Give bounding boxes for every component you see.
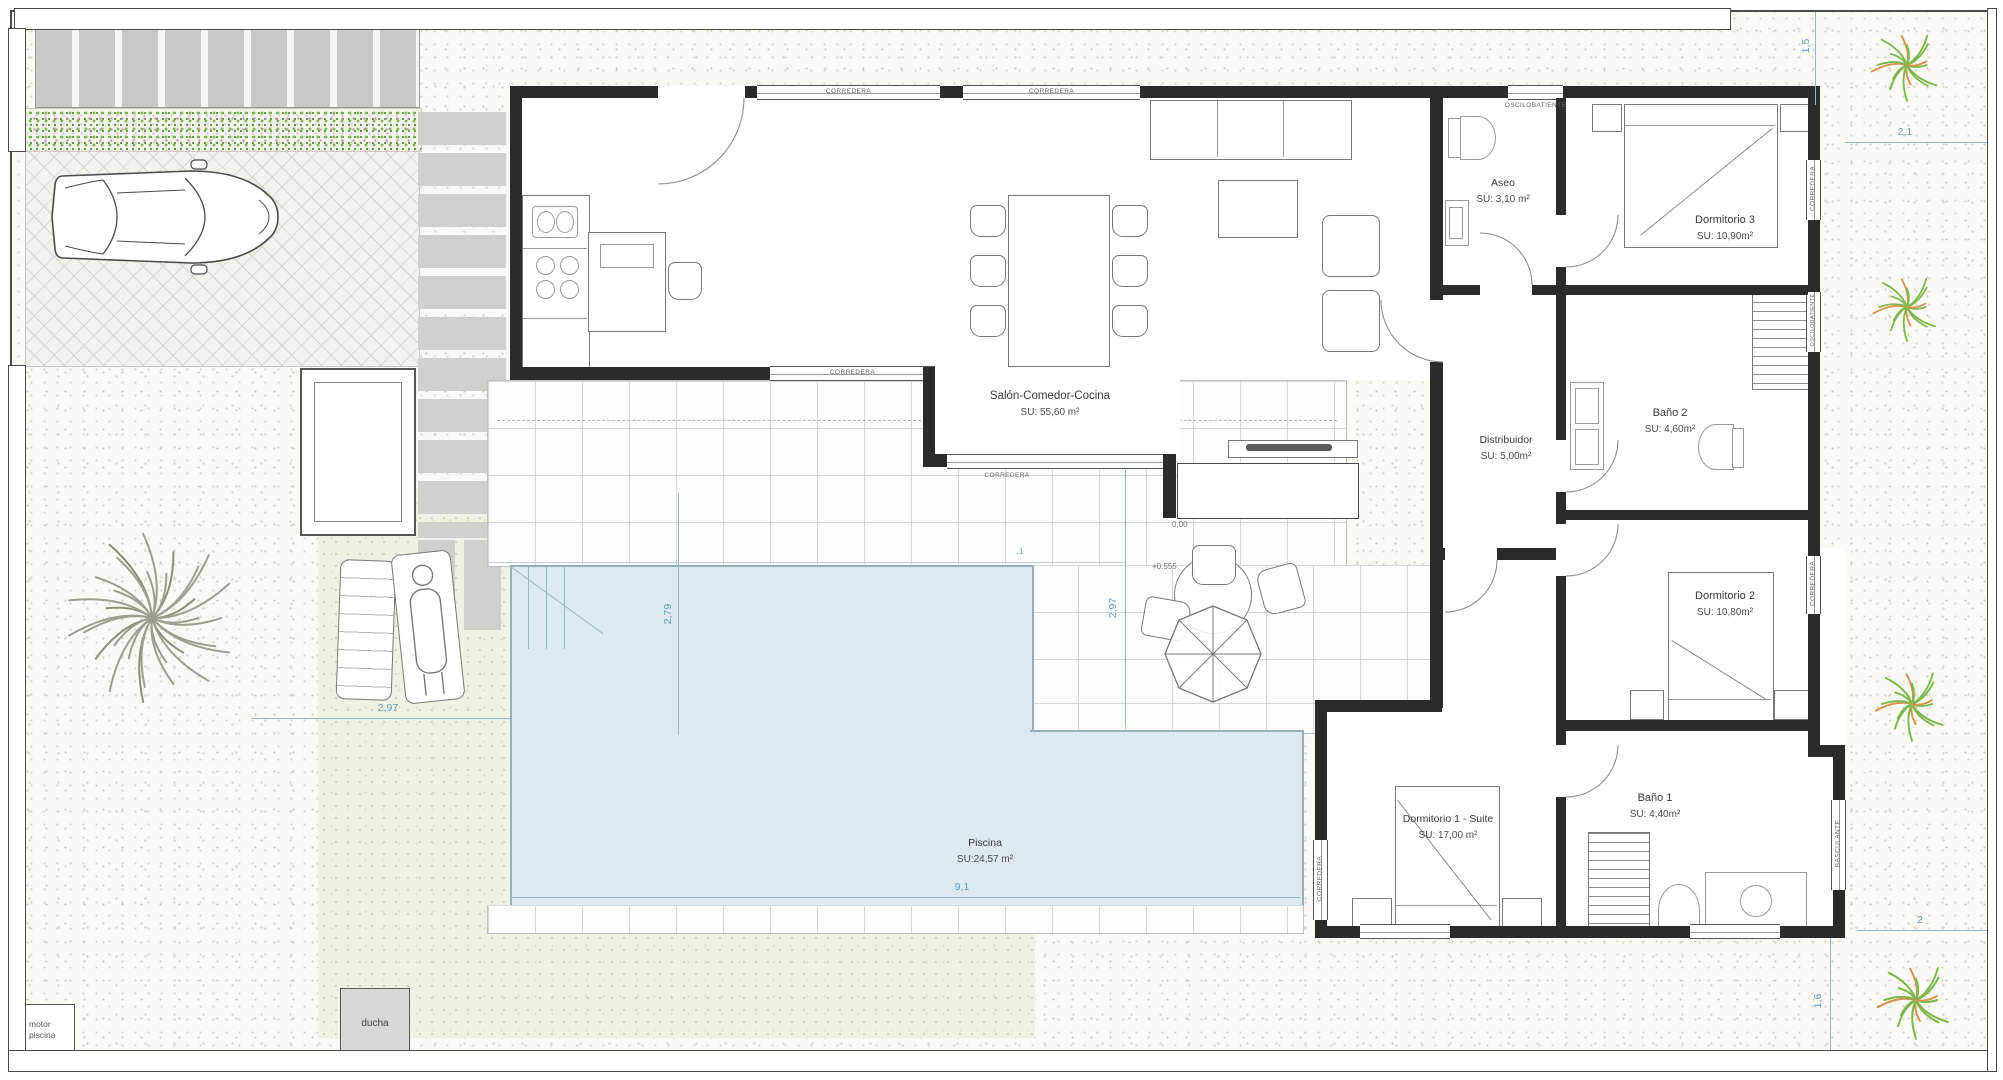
window-label-oscilobatiente: OSCILOBATIENTE xyxy=(1810,288,1816,352)
room-area: SU: 4,40m² xyxy=(1585,807,1725,822)
window-label-corredera: CORREDERA xyxy=(947,472,1067,479)
wall xyxy=(935,454,947,467)
sun-lounger xyxy=(336,559,397,701)
tree-icon xyxy=(62,528,242,708)
wall xyxy=(1566,285,1808,295)
room-label-dormitorio2: Dormitorio 2 SU: 10,80m² xyxy=(1650,588,1800,620)
boundary-wall-left xyxy=(8,28,26,152)
wall xyxy=(510,86,658,98)
room-name: Piscina xyxy=(900,836,1070,852)
door-arc-dormitorio1 xyxy=(1445,560,1497,612)
boundary-wall-top xyxy=(14,8,1731,30)
wall xyxy=(1833,745,1845,800)
stove-burner xyxy=(560,280,579,299)
wall xyxy=(1808,98,1820,160)
door-arc-dormitorio2 xyxy=(1566,524,1618,576)
window-label-oscilobatiente: OSCILOBATIENTE xyxy=(1483,102,1588,109)
room-label-salon: Salón-Comedor-Cocina SU: 55,60 m² xyxy=(930,388,1170,420)
pillow-line xyxy=(1669,699,1771,700)
wall xyxy=(1450,926,1690,938)
room-area: SU: 17,00 m² xyxy=(1358,828,1538,843)
room-label-piscina: Piscina SU:24,57 m² xyxy=(900,836,1070,867)
dimension-label: 1,5 xyxy=(1800,26,1812,66)
room-label-dormitorio3: Dormitorio 3 SU: 10,90m² xyxy=(1650,212,1800,244)
dining-chair xyxy=(1112,305,1148,337)
window-label-corredera: CORREDERA xyxy=(1810,552,1817,616)
door-arc-aseo xyxy=(1480,233,1532,285)
wall xyxy=(1430,548,1445,560)
sink-bowl xyxy=(556,211,574,233)
basin-inner xyxy=(1449,207,1463,239)
pool-surround-tiles xyxy=(487,905,1304,934)
wall xyxy=(1556,267,1566,440)
counter-division xyxy=(523,318,587,319)
dimension-line xyxy=(252,718,510,719)
plant-icon xyxy=(1874,958,1958,1042)
dimension-line xyxy=(487,562,1125,563)
window-label-basculante: BASCULANTE xyxy=(1835,812,1842,876)
basin xyxy=(1575,388,1599,424)
counter-division xyxy=(523,248,587,249)
room-name: Dormitorio 3 xyxy=(1650,212,1800,229)
wall xyxy=(1430,560,1443,708)
wall xyxy=(1140,86,1508,98)
room-label-bano2: Baño 2 SU: 4,60m² xyxy=(1600,405,1740,437)
wall xyxy=(510,367,770,380)
wall xyxy=(1556,576,1566,745)
boundary-wall-bottom xyxy=(8,1050,1997,1072)
basin xyxy=(1740,885,1772,917)
wall xyxy=(1315,700,1442,712)
planter-box xyxy=(300,368,416,536)
room-name: Distribuidor xyxy=(1441,433,1571,449)
door-arc-entry xyxy=(658,98,744,184)
kitchen-sink xyxy=(532,206,578,238)
room-area: SU: 3,10 m² xyxy=(1448,192,1558,207)
window-label-corredera: CORREDERA xyxy=(1317,847,1324,911)
wall xyxy=(1430,98,1443,300)
window-oscilobatiente xyxy=(1508,85,1563,100)
shower xyxy=(1752,292,1812,390)
dimension-label: 2,79 xyxy=(662,594,674,634)
dimension-label: 9,1 xyxy=(942,881,982,893)
nightstand xyxy=(1592,104,1622,132)
toilet-bowl xyxy=(1460,116,1496,160)
level-label: +0.555 xyxy=(1152,562,1177,571)
wall xyxy=(1497,548,1556,560)
shower xyxy=(1588,832,1650,928)
room-label-distribuidor: Distribuidor SU: 5,00m² xyxy=(1441,433,1571,464)
room-name: Aseo xyxy=(1448,176,1558,192)
sink-bowl xyxy=(537,211,555,233)
dimension-line xyxy=(1125,468,1126,726)
pillow-line xyxy=(1396,905,1497,906)
motor-label-line1: motor xyxy=(29,1019,72,1030)
coffee-table xyxy=(1218,180,1298,238)
wall xyxy=(1808,352,1820,556)
plant-icon xyxy=(1870,270,1944,344)
floor-plan: Salón-Comedor-Cocina SU: 55,60 m² Aseo S… xyxy=(0,0,2003,1080)
pergola-slats xyxy=(35,20,420,108)
dining-chair xyxy=(1112,255,1148,287)
room-area: SU: 10,90m² xyxy=(1650,229,1800,244)
car-icon xyxy=(45,148,285,286)
room-area: SU: 55,60 m² xyxy=(930,405,1170,420)
wall xyxy=(1556,492,1566,524)
island-top xyxy=(600,244,654,268)
wall xyxy=(510,98,522,380)
dimension-label: 2,97 xyxy=(1107,588,1119,628)
room-name: Baño 2 xyxy=(1600,405,1740,422)
wall xyxy=(1808,614,1820,745)
sofa-cushion-line xyxy=(1217,101,1218,157)
window-label-corredera: CORREDERA xyxy=(1810,157,1817,221)
wall xyxy=(1556,797,1566,926)
wall xyxy=(1566,720,1808,731)
window-label-corredera: CORREDERA xyxy=(757,88,940,95)
stove-burner xyxy=(536,280,555,299)
dimension-label: ,1 xyxy=(1000,546,1040,556)
door-arc-living-distribuidor xyxy=(1381,300,1443,362)
motor-label-line2: piscina xyxy=(29,1030,72,1041)
wall xyxy=(1532,285,1556,295)
stove-burner xyxy=(560,256,579,275)
wall xyxy=(1443,285,1480,295)
sofa-cushion-line xyxy=(1283,101,1284,157)
wall xyxy=(1780,926,1845,938)
sofa xyxy=(1150,100,1352,160)
room-label-dormitorio1: Dormitorio 1 - Suite SU: 17,00 m² xyxy=(1358,812,1538,843)
nightstand xyxy=(1502,898,1542,928)
dining-chair xyxy=(970,205,1006,237)
room-area: SU: 10,80m² xyxy=(1650,605,1800,620)
pool-step xyxy=(546,567,547,649)
wall xyxy=(745,86,757,98)
dining-chair xyxy=(1112,205,1148,237)
outdoor-chair xyxy=(1192,545,1236,585)
wall xyxy=(1163,454,1176,518)
dining-chair xyxy=(970,255,1006,287)
dimension-line xyxy=(1830,938,1831,1068)
door-arc-dormitorio3 xyxy=(1566,215,1618,267)
wall xyxy=(1563,86,1820,98)
dining-chair xyxy=(970,305,1006,337)
room-area: SU: 4,60m² xyxy=(1600,422,1740,437)
plant-icon xyxy=(1868,26,1946,104)
level-label: 0,00 xyxy=(1172,520,1188,529)
window xyxy=(1690,924,1780,939)
toilet-bowl xyxy=(1658,884,1700,928)
bed xyxy=(1395,786,1500,928)
roof-overhang-dashed-line xyxy=(497,420,1337,421)
terrace-window-band xyxy=(1177,463,1359,519)
dimension-line xyxy=(1815,12,1816,105)
room-label-bano1: Baño 1 SU: 4,40m² xyxy=(1585,790,1725,822)
window xyxy=(1360,924,1450,939)
washbasin xyxy=(1445,200,1469,246)
room-label-aseo: Aseo SU: 3,10 m² xyxy=(1448,176,1558,207)
wall xyxy=(1808,220,1820,292)
door-arc-bano2 xyxy=(1566,440,1618,492)
boundary-wall-left xyxy=(8,365,26,1052)
dimension-line xyxy=(1857,930,1988,931)
pool xyxy=(1030,730,1304,909)
pool-step xyxy=(564,567,565,649)
tv xyxy=(1246,444,1332,451)
planter-inner xyxy=(314,382,402,522)
wall xyxy=(1566,510,1808,520)
window-label-corredera: CORREDERA xyxy=(770,369,935,376)
room-area: SU:24,57 m² xyxy=(900,852,1070,867)
wall xyxy=(1315,926,1360,938)
wall xyxy=(1315,712,1327,840)
armchair xyxy=(1322,215,1380,277)
room-name: Dormitorio 2 xyxy=(1650,588,1800,605)
dining-table xyxy=(1008,195,1110,367)
bathroom-vanity xyxy=(1705,872,1807,928)
parasol-icon xyxy=(1157,598,1269,710)
dimension-label: 2 xyxy=(1900,914,1940,926)
window-label-corredera: CORREDERA xyxy=(963,88,1140,95)
dimension-label: 2,1 xyxy=(1885,126,1925,138)
ducha-box: ducha xyxy=(340,988,410,1058)
dimension-label: 2,97 xyxy=(368,702,408,714)
dimension-line xyxy=(1845,142,1988,143)
stove-burner xyxy=(536,256,555,275)
nightstand xyxy=(1774,690,1810,720)
room-area: SU: 5,00m² xyxy=(1441,449,1571,464)
dimension-line xyxy=(510,897,1300,898)
pillow-line xyxy=(1625,125,1775,126)
ducha-label: ducha xyxy=(361,1018,388,1029)
nightstand xyxy=(1630,690,1664,720)
plant-icon xyxy=(1872,664,1952,744)
window-corredera xyxy=(947,454,1163,469)
dimension-line xyxy=(678,493,679,735)
room-name: Dormitorio 1 - Suite xyxy=(1358,812,1538,828)
wall xyxy=(940,86,963,98)
dimension-label: 1,6 xyxy=(1812,981,1824,1021)
boundary-wall-right xyxy=(1987,8,1997,1072)
room-name: Salón-Comedor-Cocina xyxy=(930,388,1170,405)
armchair xyxy=(1322,290,1380,352)
motor-piscina-box: motor piscina xyxy=(25,1004,75,1054)
stool xyxy=(668,262,702,300)
room-name: Baño 1 xyxy=(1585,790,1725,807)
flower-hedge xyxy=(25,108,422,152)
